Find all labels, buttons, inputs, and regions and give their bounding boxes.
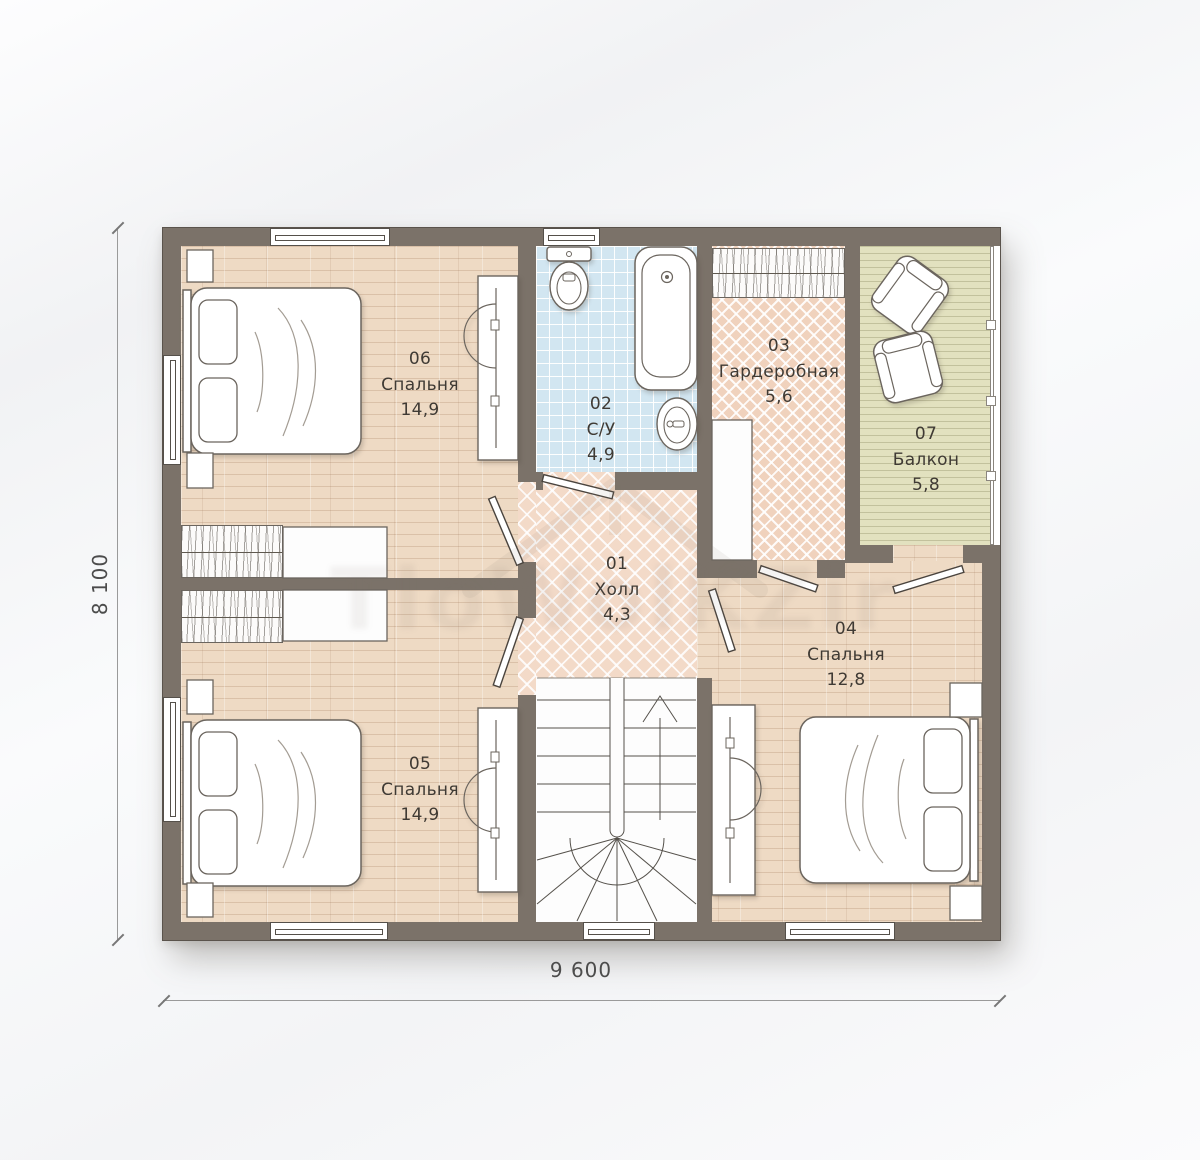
room-area: 12,8 bbox=[771, 668, 921, 694]
dimension-tick bbox=[994, 995, 1007, 1008]
window bbox=[543, 228, 600, 246]
dimension-label-bottom: 9 600 bbox=[536, 958, 626, 982]
railing-post bbox=[986, 396, 996, 406]
window bbox=[270, 228, 390, 246]
room-area: 14,9 bbox=[345, 398, 495, 424]
window bbox=[583, 922, 655, 940]
room-label-04: 04 Спальня 12,8 bbox=[771, 617, 921, 694]
window bbox=[163, 697, 181, 822]
room-04-bedroom-floor bbox=[697, 560, 982, 922]
wall-segment bbox=[615, 472, 712, 490]
door-threshold bbox=[518, 482, 536, 562]
room-area: 14,9 bbox=[345, 803, 495, 829]
dimension-tick bbox=[158, 995, 171, 1008]
room-number: 05 bbox=[345, 752, 495, 778]
room-label-06: 06 Спальня 14,9 bbox=[345, 347, 495, 424]
bedroom-05-clothes-rack bbox=[181, 590, 283, 643]
wall-segment bbox=[982, 555, 1000, 940]
room-label-01: 01 Холл 4,3 bbox=[542, 552, 692, 629]
room-number: 06 bbox=[345, 347, 495, 373]
staircase-floor bbox=[536, 678, 697, 922]
room-number: 03 bbox=[704, 334, 854, 360]
wall-segment bbox=[845, 545, 893, 563]
room-name: Спальня bbox=[771, 643, 921, 669]
room-area: 4,9 bbox=[526, 443, 676, 469]
window bbox=[163, 355, 181, 465]
room-label-05: 05 Спальня 14,9 bbox=[345, 752, 495, 829]
wall-segment bbox=[518, 695, 536, 922]
room-label-03: 03 Гардеробная 5,6 bbox=[704, 334, 854, 411]
dimension-tick bbox=[112, 222, 125, 235]
balcony-door-threshold bbox=[893, 545, 963, 561]
room-name: Холл bbox=[542, 578, 692, 604]
room-name: Спальня bbox=[345, 373, 495, 399]
bedroom-06-clothes-rack bbox=[181, 525, 283, 578]
window bbox=[270, 922, 388, 940]
room-label-02: 02 С/У 4,9 bbox=[526, 392, 676, 469]
floor-plan-canvas: TloWolKZir bbox=[0, 0, 1200, 1160]
room-name: Гардеробная bbox=[704, 360, 854, 386]
railing-post bbox=[986, 320, 996, 330]
floor-plan: 06 Спальня 14,9 02 С/У 4,9 03 Гардеробна… bbox=[163, 228, 1000, 940]
room-name: Балкон bbox=[851, 448, 1001, 474]
room-number: 07 bbox=[851, 422, 1001, 448]
wall-segment bbox=[163, 228, 181, 940]
dimension-line-bottom bbox=[163, 1000, 1000, 1001]
dimension-line-left bbox=[117, 228, 118, 940]
room-area: 4,3 bbox=[542, 603, 692, 629]
window bbox=[785, 922, 895, 940]
room-name: С/У bbox=[526, 418, 676, 444]
room-07-balcony-floor bbox=[860, 246, 994, 545]
wall-segment bbox=[181, 578, 518, 590]
wall-segment bbox=[697, 560, 757, 578]
room-number: 04 bbox=[771, 617, 921, 643]
room-area: 5,8 bbox=[851, 473, 1001, 499]
wall-segment bbox=[817, 560, 845, 578]
room-number: 01 bbox=[542, 552, 692, 578]
room-number: 02 bbox=[526, 392, 676, 418]
room-name: Спальня bbox=[345, 778, 495, 804]
wall-segment bbox=[697, 678, 712, 922]
dimension-label-left: 8 100 bbox=[88, 539, 112, 629]
door-threshold bbox=[518, 618, 536, 695]
wall-segment bbox=[963, 545, 1000, 563]
dimension-tick bbox=[112, 934, 125, 947]
room-label-07: 07 Балкон 5,8 bbox=[851, 422, 1001, 499]
wall-segment bbox=[518, 562, 536, 618]
wall-segment bbox=[536, 472, 543, 490]
wardrobe-clothes-rack bbox=[712, 248, 845, 298]
room-area: 5,6 bbox=[704, 385, 854, 411]
